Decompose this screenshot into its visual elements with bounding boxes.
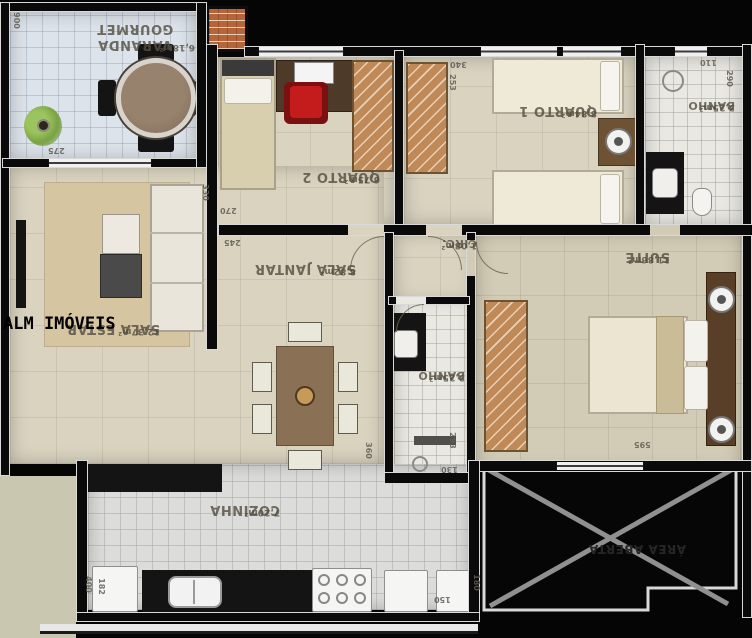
wall [76, 460, 88, 620]
dishwasher [384, 570, 428, 612]
dimension: 245 [224, 238, 241, 247]
dining-chair [252, 404, 272, 434]
dimension: 400 [84, 576, 93, 593]
bedside-lamp-center [717, 295, 726, 304]
window [562, 47, 622, 56]
exterior-sill [40, 624, 478, 634]
armchair-cushion [102, 214, 140, 254]
pillow [600, 61, 620, 111]
dimension: 900 [12, 12, 21, 29]
dimension: 182 [97, 578, 106, 595]
door-opening [426, 225, 462, 235]
dimension: 270 [220, 206, 237, 215]
dimension: 130 [441, 465, 458, 474]
wall [0, 2, 10, 476]
window [480, 47, 558, 56]
dimension: 340 [450, 60, 467, 69]
exterior-ground [0, 476, 76, 638]
room-area: 3,25m² [429, 371, 465, 382]
room-area: 12,37m² [118, 325, 160, 336]
bath-sink [652, 168, 678, 198]
dining-chair [252, 362, 272, 392]
dining-chair [288, 322, 322, 342]
wall [384, 232, 394, 484]
desk-chair-cushion [290, 86, 322, 118]
round-table [116, 58, 196, 138]
watermark: ALM IMÓVEIS [3, 314, 116, 334]
wall [2, 2, 207, 12]
table-centerpiece [295, 386, 315, 406]
dining-chair [288, 450, 322, 470]
room-area: 3,25m² [699, 101, 735, 112]
dimension: 110 [700, 58, 717, 67]
dimension: 595 [634, 440, 651, 449]
window [258, 47, 344, 56]
room-area: 7,20m² [244, 506, 280, 517]
door-opening [348, 225, 384, 235]
dimension: 180 [472, 574, 481, 591]
shower-head [662, 70, 684, 92]
pillow [600, 174, 620, 224]
stove-burner [318, 592, 330, 604]
tv-panel [16, 220, 26, 308]
laptop [294, 62, 334, 84]
dimension: 253 [448, 74, 457, 91]
stove-burner [336, 574, 348, 586]
bed-headboard [222, 60, 274, 76]
plant-pot [37, 119, 50, 132]
sofa [150, 184, 204, 332]
stove-burner [336, 592, 348, 604]
stove-burner [354, 592, 366, 604]
dimension: 290 [725, 70, 734, 87]
room-area: 8,82m² [320, 265, 356, 276]
dimension: 150 [434, 595, 451, 604]
bath-sink [394, 330, 418, 358]
coffee-table [100, 254, 142, 298]
sofa-seam [150, 282, 204, 284]
dimension: 275 [48, 146, 65, 155]
balcony-chair [98, 80, 116, 116]
stove-burner [318, 574, 330, 586]
dimension: 330 [201, 184, 210, 201]
room-name: ÁREA ABERTA [588, 541, 686, 556]
room-area: 6,75m² [344, 173, 380, 184]
washer [436, 570, 470, 612]
wall [742, 44, 752, 618]
room-area: 11,86m² [628, 253, 670, 264]
kitchen-sink [168, 576, 222, 608]
dimension: 360 [364, 442, 373, 459]
room-area: 6,18m² [159, 41, 195, 52]
wardrobe [352, 60, 394, 172]
pillow [684, 320, 708, 362]
stove-burner [354, 574, 366, 586]
wall [394, 50, 404, 234]
dimension: 293 [448, 432, 457, 449]
sofa-seam [150, 232, 204, 234]
window [556, 462, 644, 470]
pillow [684, 366, 708, 410]
pillow [224, 78, 272, 104]
room-area: 1,08m² [441, 239, 477, 250]
bedside-lamp-center [717, 425, 726, 434]
dining-chair [338, 362, 358, 392]
wall [635, 44, 645, 236]
kitchen-island [80, 464, 222, 492]
wall [384, 472, 476, 484]
dining-chair [338, 404, 358, 434]
toilet [692, 188, 712, 216]
wall [76, 612, 480, 622]
door-opening [396, 297, 426, 304]
room-area: 8,84m² [561, 107, 597, 118]
bed-runner [656, 316, 684, 414]
wardrobe [484, 300, 528, 452]
floor-plan: VARANDA GOURMET 6,18m² QUARTO 2 6,75m² Q… [0, 0, 752, 638]
window [674, 47, 708, 56]
door-opening [650, 225, 680, 235]
sliding-door [48, 159, 152, 167]
wardrobe [406, 62, 448, 174]
floor-drain [412, 456, 428, 472]
bedside-lamp-center [614, 137, 623, 146]
wall [468, 460, 480, 618]
sink-divider [193, 580, 195, 604]
